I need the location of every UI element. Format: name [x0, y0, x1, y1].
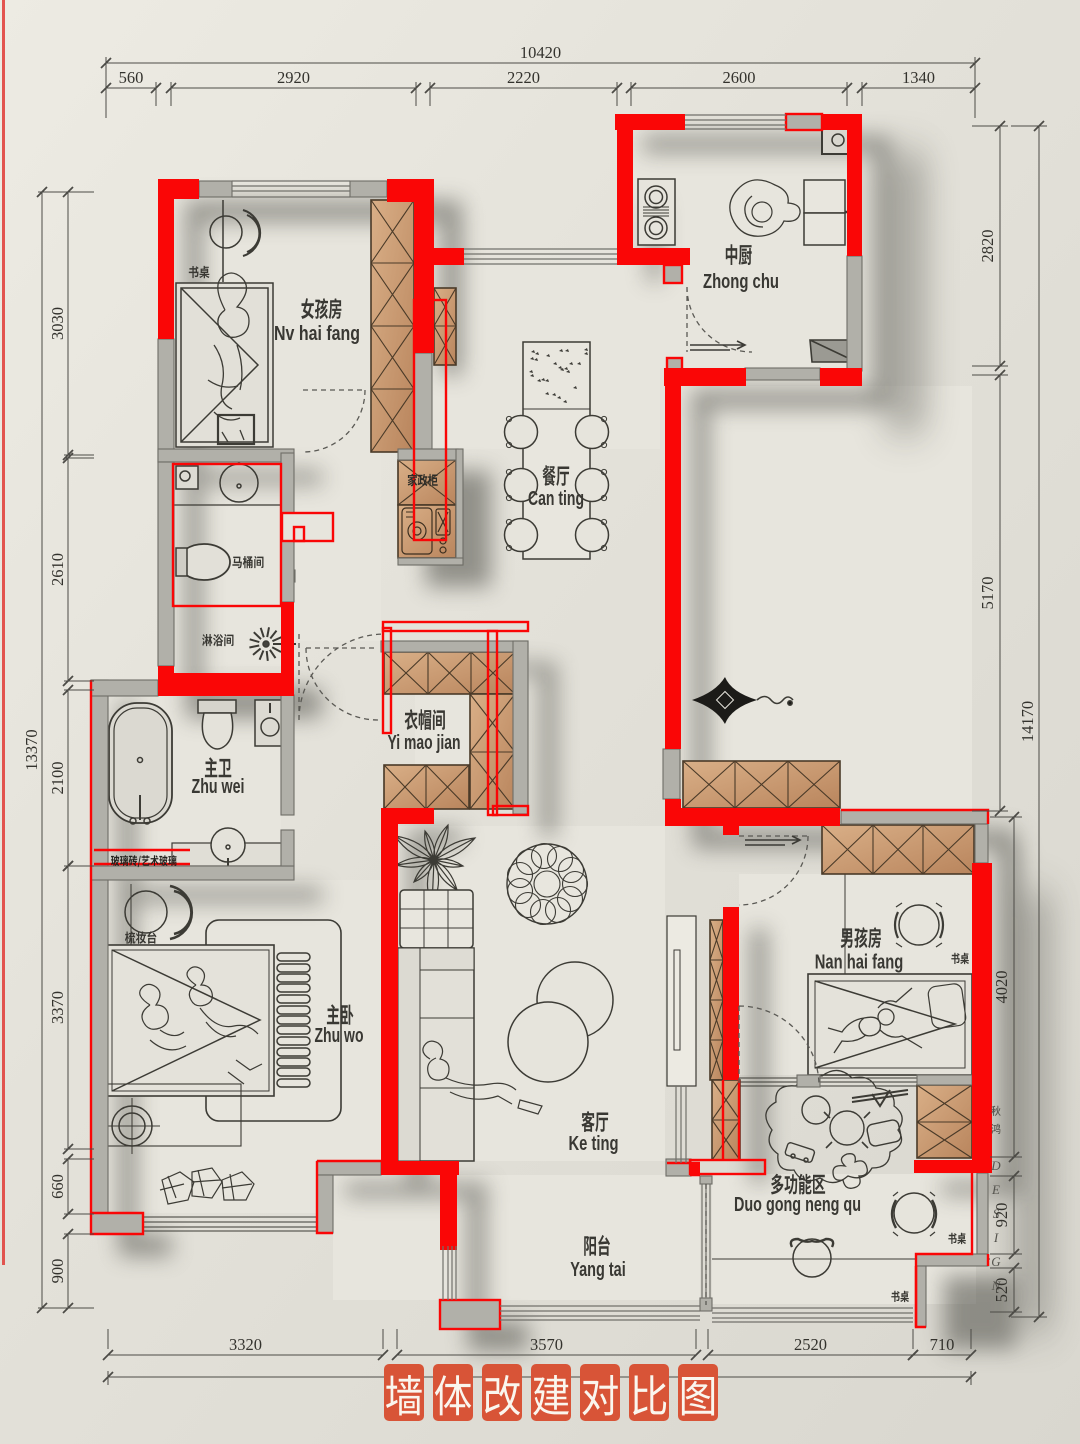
svg-text:2920: 2920: [277, 68, 310, 87]
svg-text:3030: 3030: [48, 307, 67, 340]
svg-text:560: 560: [119, 68, 144, 87]
svg-text:2610: 2610: [48, 553, 67, 586]
svg-text:E: E: [991, 1182, 1000, 1197]
svg-text:3320: 3320: [229, 1335, 262, 1354]
svg-text:13370: 13370: [22, 729, 41, 770]
svg-text:3370: 3370: [48, 991, 67, 1024]
svg-text:660: 660: [48, 1174, 67, 1199]
svg-text:10420: 10420: [520, 43, 561, 62]
svg-text:5170: 5170: [978, 577, 997, 610]
svg-text:D: D: [990, 1158, 1001, 1173]
svg-text:920: 920: [992, 1203, 1011, 1228]
svg-text:2820: 2820: [978, 230, 997, 263]
svg-text:2520: 2520: [794, 1335, 827, 1354]
svg-text:Ke ting: Ke ting: [569, 1132, 619, 1155]
svg-text:900: 900: [48, 1259, 67, 1284]
svg-text:Nan hai fang: Nan hai fang: [815, 951, 904, 974]
svg-text:Zhong chu: Zhong chu: [703, 270, 779, 293]
svg-text:Can ting: Can ting: [528, 487, 584, 510]
svg-text:1340: 1340: [902, 68, 935, 87]
svg-text:2220: 2220: [507, 68, 540, 87]
svg-text:Yang tai: Yang tai: [570, 1258, 626, 1281]
svg-text:3570: 3570: [530, 1335, 563, 1354]
svg-text:Zhu wei: Zhu wei: [192, 775, 245, 798]
svg-text:Nv hai fang: Nv hai fang: [274, 322, 360, 345]
svg-text:G: G: [991, 1254, 1001, 1269]
svg-text:14170: 14170: [1018, 701, 1037, 742]
svg-text:520: 520: [992, 1278, 1011, 1303]
svg-text:2100: 2100: [48, 762, 67, 795]
svg-text:I: I: [993, 1230, 999, 1245]
svg-text:4020: 4020: [992, 971, 1011, 1004]
svg-text:710: 710: [930, 1335, 955, 1354]
svg-text:Duo gong neng qu: Duo gong neng qu: [734, 1193, 861, 1216]
svg-text:Yi mao jian: Yi mao jian: [388, 731, 461, 754]
svg-text:2600: 2600: [723, 68, 756, 87]
svg-text:Zhu wo: Zhu wo: [315, 1024, 364, 1047]
